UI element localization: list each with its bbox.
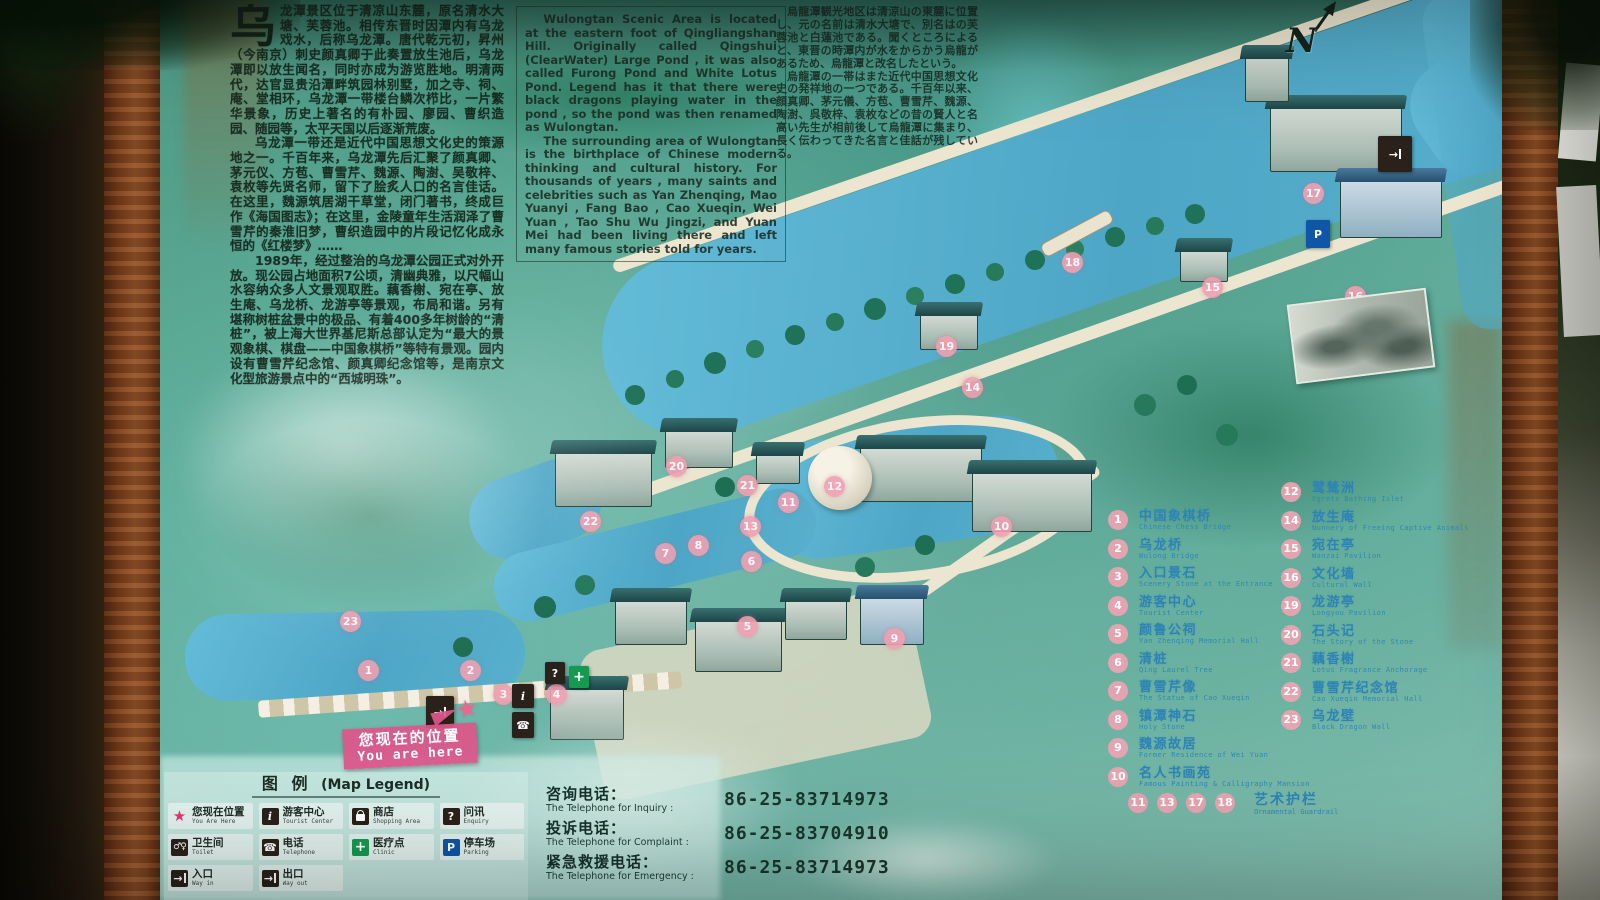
legend-label-en: Parking bbox=[464, 849, 496, 857]
poi-number-badge: 11 bbox=[1128, 793, 1148, 813]
legend-icon bbox=[262, 870, 279, 887]
map-legend-item: 医疗点 Clinic bbox=[349, 834, 434, 860]
contact-label-zh: 投诉电话： bbox=[546, 820, 724, 837]
poi-name-zh: 龙游亭 bbox=[1312, 596, 1386, 609]
poi-name-en: Wanzai Pavilion bbox=[1312, 552, 1381, 561]
map-marker: 9 bbox=[884, 628, 905, 649]
legend-icon bbox=[352, 808, 369, 825]
poi-number-badge: 7 bbox=[1108, 681, 1128, 701]
ja-paragraph-2: 烏龍潭の一帯はまた近代中国思想文化史の発祥地の一つである。千百年以来、顔真卿、茅… bbox=[776, 71, 978, 161]
poi-legend-row: 14 放生庵Nunnery of Freeing Captive Animals bbox=[1281, 511, 1469, 531]
poi-number-badge: 3 bbox=[1108, 567, 1128, 587]
poi-name-en: Scenery Stone at the Entrance bbox=[1139, 580, 1273, 589]
map-legend-title: 图 例 (Map Legend) bbox=[252, 774, 440, 798]
telephone-icon bbox=[512, 712, 534, 738]
poi-name-zh: 魏源故居 bbox=[1139, 738, 1268, 751]
poi-name-en: Wulong Bridge bbox=[1139, 552, 1199, 561]
legend-icon bbox=[262, 839, 279, 856]
poi-name-en: Black Dragon Wall bbox=[1312, 723, 1390, 732]
wanzai-pavilion bbox=[1180, 248, 1228, 282]
contact-label-zh: 紧急救援电话： bbox=[546, 854, 724, 871]
en-paragraph-2: The surrounding area of Wulongtan is the… bbox=[525, 135, 777, 257]
tourist-center-icon bbox=[512, 684, 534, 708]
gray-paper bbox=[1556, 185, 1600, 337]
legend-label-en: Tourist Center bbox=[283, 818, 334, 826]
map-marker: 21 bbox=[737, 475, 758, 496]
memorial-hall bbox=[860, 445, 982, 502]
poi-name-en: The Statue of Cao Xueqin bbox=[1139, 694, 1250, 703]
poi-legend-row: 15 宛在亭Wanzai Pavilion bbox=[1281, 539, 1469, 559]
poi-legend-row: 19 龙游亭Longyou Pavilion bbox=[1281, 596, 1469, 616]
map-legend-title-en: (Map Legend) bbox=[321, 777, 430, 793]
legend-icon bbox=[352, 839, 369, 856]
poi-number-badge: 6 bbox=[1108, 653, 1128, 673]
legend-icon bbox=[171, 839, 188, 856]
map-legend-item: 出口 Way out bbox=[259, 865, 344, 891]
japanese-intro-text: 烏龍潭観光地区は清涼山の東麓に位置し、元の名前は清水大塘で、別名はの芙蓉池と白蓮… bbox=[776, 6, 978, 216]
tree-trunk-shadow bbox=[0, 0, 106, 900]
poi-legend-column-2: 12 鹭鸶洲Egrets Bathing Islet 14 放生庵Nunnery… bbox=[1281, 482, 1469, 730]
poi-legend-row: 22 曹雪芹纪念馆Cao Xueqin Memorial Hall bbox=[1281, 682, 1469, 702]
contact-row: 咨询电话： The Telephone for Inquiry : 86-25-… bbox=[546, 786, 896, 814]
map-board: 1234567891011121314151617181920212223 ★ … bbox=[160, 0, 1502, 900]
poi-name-en: Cultural Wall bbox=[1312, 581, 1372, 590]
poi-number-badge: 14 bbox=[1281, 511, 1301, 531]
north-compass: N bbox=[1278, 2, 1348, 72]
map-legend-item: 入口 Way in bbox=[168, 865, 253, 891]
poi-legend-row: 8 镇潭神石Holy Stone bbox=[1108, 710, 1310, 730]
poi-name-zh: 颜鲁公祠 bbox=[1139, 624, 1259, 637]
way-out-icon bbox=[1378, 136, 1412, 172]
poi-name-zh: 镇潭神石 bbox=[1139, 710, 1197, 723]
legend-label-zh: 问讯 bbox=[464, 806, 489, 818]
map-marker: 18 bbox=[1062, 252, 1083, 273]
guardrail-legend-row: 11131718 艺术护栏 Ornamental Guardrail bbox=[1128, 793, 1338, 817]
map-marker: 6 bbox=[741, 551, 762, 572]
poi-name-en: Famous Painting & Calligraphy Mansion bbox=[1139, 780, 1310, 789]
map-marker: 2 bbox=[460, 660, 481, 681]
map-marker: 10 bbox=[991, 516, 1012, 537]
poi-name-zh: 曹雪芹像 bbox=[1139, 681, 1250, 694]
poi-name-zh: 名人书画苑 bbox=[1139, 767, 1310, 780]
legend-label-zh: 停车场 bbox=[464, 837, 496, 849]
poi-number-badge: 10 bbox=[1108, 767, 1128, 787]
legend-label-zh: 医疗点 bbox=[373, 837, 405, 849]
compass-label: N bbox=[1286, 24, 1317, 58]
map-legend-item: 电话 Telephone bbox=[259, 834, 344, 860]
poi-name-zh: 鹭鸶洲 bbox=[1312, 482, 1404, 495]
poi-legend-row: 6 清桩Qing Laurel Tree bbox=[1108, 653, 1310, 673]
poi-number-badge: 9 bbox=[1108, 738, 1128, 758]
map-marker: 3 bbox=[493, 684, 514, 705]
map-legend-item: 您现在位置 You Are Here bbox=[168, 803, 253, 829]
poi-legend-row: 16 文化墙Cultural Wall bbox=[1281, 568, 1469, 588]
poi-name-zh: 放生庵 bbox=[1312, 511, 1469, 524]
map-marker: 5 bbox=[737, 616, 758, 637]
poi-name-en: Former Residence of Wei Yuan bbox=[1139, 751, 1268, 760]
contact-number: 86-25-83714973 bbox=[724, 790, 890, 810]
map-marker: 4 bbox=[546, 684, 567, 705]
poi-legend-row: 4 游客中心Tourist Center bbox=[1108, 596, 1310, 616]
drop-cap: 乌 bbox=[230, 6, 276, 46]
contact-label-en: The Telephone for Inquiry : bbox=[546, 803, 724, 814]
legend-label-en: Enquiry bbox=[464, 818, 489, 826]
contact-number: 86-25-83714973 bbox=[724, 858, 890, 878]
poi-name-en: Nunnery of Freeing Captive Animals bbox=[1312, 524, 1469, 533]
legend-label-en: Way out bbox=[283, 880, 308, 888]
legend-label-zh: 您现在位置 bbox=[192, 806, 245, 818]
clinic-icon bbox=[569, 666, 589, 688]
poi-name-en: Holy Stone bbox=[1139, 723, 1197, 732]
en-paragraph-1: Wulongtan Scenic Area is located at the … bbox=[525, 13, 777, 135]
poi-name-zh: 入口景石 bbox=[1139, 567, 1273, 580]
wooden-frame-right bbox=[1502, 0, 1558, 900]
calligraphy-mansion bbox=[972, 470, 1092, 532]
poi-number-badge: 20 bbox=[1281, 625, 1301, 645]
ja-paragraph-1: 烏龍潭観光地区は清涼山の東麓に位置し、元の名前は清水大塘で、別名はの芙蓉池と白蓮… bbox=[776, 6, 978, 71]
map-legend-item: 停车场 Parking bbox=[440, 834, 525, 860]
map-marker: 14 bbox=[962, 377, 983, 398]
poi-name-en: Qing Laurel Tree bbox=[1139, 666, 1213, 675]
cultural-wall-photo-inset bbox=[1287, 288, 1436, 384]
map-marker: 19 bbox=[936, 336, 957, 357]
poi-number-badge: 1 bbox=[1108, 510, 1128, 530]
poi-name-en: Longyou Pavilion bbox=[1312, 609, 1386, 618]
poi-number-badge: 21 bbox=[1281, 653, 1301, 673]
poi-name-en: Chinese Chess Bridge bbox=[1139, 523, 1231, 532]
poi-legend-row: 20 石头记The Story of the Stone bbox=[1281, 625, 1469, 645]
poi-legend-row: 23 乌龙壁Black Dragon Wall bbox=[1281, 710, 1469, 730]
poi-number-badge: 19 bbox=[1281, 596, 1301, 616]
poi-legend-column-1: 1 中国象棋桥Chinese Chess Bridge 2 乌龙桥Wulong … bbox=[1108, 510, 1310, 787]
map-legend-box: 图 例 (Map Legend) 您现在位置 You Are Here 游客中心 bbox=[164, 772, 528, 900]
poi-number-badge: 16 bbox=[1281, 568, 1301, 588]
map-legend-title-zh: 图 例 bbox=[262, 774, 312, 793]
english-intro-text: Wulongtan Scenic Area is located at the … bbox=[516, 6, 786, 262]
legend-label-en: Way in bbox=[192, 880, 214, 888]
poi-name-en: Tourist Center bbox=[1139, 609, 1204, 618]
zh-paragraph-2: 乌龙潭一带还是近代中国思想文化史的策源地之一。千百年来，乌龙潭先后汇聚了颜真卿、… bbox=[230, 136, 504, 254]
legend-label-zh: 卫生间 bbox=[192, 837, 224, 849]
legend-label-en: Toilet bbox=[192, 849, 224, 857]
poi-name-en: Egrets Bathing Islet bbox=[1312, 495, 1404, 504]
legend-label-zh: 入口 bbox=[192, 868, 214, 880]
legend-icon bbox=[171, 808, 188, 825]
poi-name-zh: 游客中心 bbox=[1139, 596, 1204, 609]
legend-label-zh: 电话 bbox=[283, 837, 316, 849]
map-marker: 1 bbox=[358, 660, 379, 681]
legend-label-en: Clinic bbox=[373, 849, 405, 857]
poi-name-zh: 清桩 bbox=[1139, 653, 1213, 666]
poi-name-en: Lotus Fragrance Anchorage bbox=[1312, 666, 1427, 675]
legend-label-zh: 游客中心 bbox=[283, 806, 334, 818]
poi-number-badge: 17 bbox=[1186, 793, 1206, 813]
contact-number: 86-25-83704910 bbox=[724, 824, 890, 844]
guardrail-en: Ornamental Guardrail bbox=[1254, 808, 1338, 817]
legend-label-zh: 商店 bbox=[373, 806, 420, 818]
legend-label-zh: 出口 bbox=[283, 868, 308, 880]
contact-label-en: The Telephone for Emergency : bbox=[546, 871, 724, 882]
contact-row: 紧急救援电话： The Telephone for Emergency : 86… bbox=[546, 854, 896, 882]
poi-legend-row: 7 曹雪芹像The Statue of Cao Xueqin bbox=[1108, 681, 1310, 701]
poi-name-en: The Story of the Stone bbox=[1312, 638, 1414, 647]
poi-number-badge: 12 bbox=[1281, 482, 1301, 502]
poi-number-badge: 5 bbox=[1108, 624, 1128, 644]
poi-number-badge: 13 bbox=[1157, 793, 1177, 813]
map-legend-grid: 您现在位置 You Are Here 游客中心 Tourist Center 商… bbox=[168, 803, 524, 891]
map-marker: 12 bbox=[824, 476, 845, 497]
poi-legend-row: 3 入口景石Scenery Stone at the Entrance bbox=[1108, 567, 1310, 587]
map-marker: 11 bbox=[778, 492, 799, 513]
poi-legend-row: 2 乌龙桥Wulong Bridge bbox=[1108, 539, 1310, 559]
village-house bbox=[615, 598, 687, 645]
poi-number-badge: 8 bbox=[1108, 710, 1128, 730]
map-marker: 15 bbox=[1202, 277, 1223, 298]
poi-name-en: Cao Xueqin Memorial Hall bbox=[1312, 695, 1423, 704]
poi-name-zh: 藕香榭 bbox=[1312, 653, 1427, 666]
legend-label-en: Shopping Area bbox=[373, 818, 420, 826]
foliage-top-right bbox=[1470, 0, 1600, 130]
map-legend-item: 卫生间 Toilet bbox=[168, 834, 253, 860]
contact-label-zh: 咨询电话： bbox=[546, 786, 724, 803]
photo-of-map-sign: 1234567891011121314151617181920212223 ★ … bbox=[0, 0, 1600, 900]
legend-label-en: You Are Here bbox=[192, 818, 245, 826]
map-marker: 17 bbox=[1303, 183, 1324, 204]
legend-label-en: Telephone bbox=[283, 849, 316, 857]
poi-legend-row: 10 名人书画苑Famous Painting & Calligraphy Ma… bbox=[1108, 767, 1310, 787]
poi-legend-row: 9 魏源故居Former Residence of Wei Yuan bbox=[1108, 738, 1310, 758]
legend-icon bbox=[443, 808, 460, 825]
map-marker: 13 bbox=[740, 516, 761, 537]
legend-icon bbox=[262, 808, 279, 825]
map-legend-item: 问讯 Enquiry bbox=[440, 803, 525, 829]
poi-legend-row: 1 中国象棋桥Chinese Chess Bridge bbox=[1108, 510, 1310, 530]
building bbox=[1340, 178, 1442, 238]
poi-number-badge: 2 bbox=[1108, 539, 1128, 559]
enquiry-icon bbox=[545, 662, 565, 684]
poi-number-badge: 23 bbox=[1281, 710, 1301, 730]
legend-icon bbox=[443, 839, 460, 856]
poi-name-zh: 曹雪芹纪念馆 bbox=[1312, 682, 1423, 695]
contact-label-en: The Telephone for Complaint : bbox=[546, 837, 724, 848]
you-are-here-badge: 您现在的位置 You are here bbox=[342, 723, 478, 770]
map-legend-item: 商店 Shopping Area bbox=[349, 803, 434, 829]
poi-number-badge: 15 bbox=[1281, 539, 1301, 559]
poi-legend-row: 21 藕香榭Lotus Fragrance Anchorage bbox=[1281, 653, 1469, 673]
village-house bbox=[785, 598, 847, 640]
map-legend-item: 游客中心 Tourist Center bbox=[259, 803, 344, 829]
contact-row: 投诉电话： The Telephone for Complaint : 86-2… bbox=[546, 820, 896, 848]
guardrail-zh: 艺术护栏 bbox=[1254, 793, 1338, 808]
poi-name-en: Yan Zhenqing Memorial Hall bbox=[1139, 637, 1259, 646]
wooden-frame-left bbox=[104, 0, 160, 900]
poi-number-badge: 22 bbox=[1281, 682, 1301, 702]
poi-name-zh: 乌龙壁 bbox=[1312, 710, 1390, 723]
poi-legend-row: 12 鹭鸶洲Egrets Bathing Islet bbox=[1281, 482, 1469, 502]
poi-number-badge: 18 bbox=[1215, 793, 1235, 813]
poi-number-badge: 4 bbox=[1108, 596, 1128, 616]
contact-phones: 咨询电话： The Telephone for Inquiry : 86-25-… bbox=[546, 786, 896, 888]
poi-name-zh: 石头记 bbox=[1312, 625, 1414, 638]
poi-name-zh: 乌龙桥 bbox=[1139, 539, 1199, 552]
small-pavilion bbox=[756, 452, 800, 484]
poi-name-zh: 中国象棋桥 bbox=[1139, 510, 1231, 523]
poi-name-zh: 文化墙 bbox=[1312, 568, 1372, 581]
parking-icon bbox=[1306, 220, 1330, 248]
legend-icon bbox=[171, 870, 188, 887]
poi-name-zh: 宛在亭 bbox=[1312, 539, 1381, 552]
poi-legend-row: 5 颜鲁公祠Yan Zhenqing Memorial Hall bbox=[1108, 624, 1310, 644]
